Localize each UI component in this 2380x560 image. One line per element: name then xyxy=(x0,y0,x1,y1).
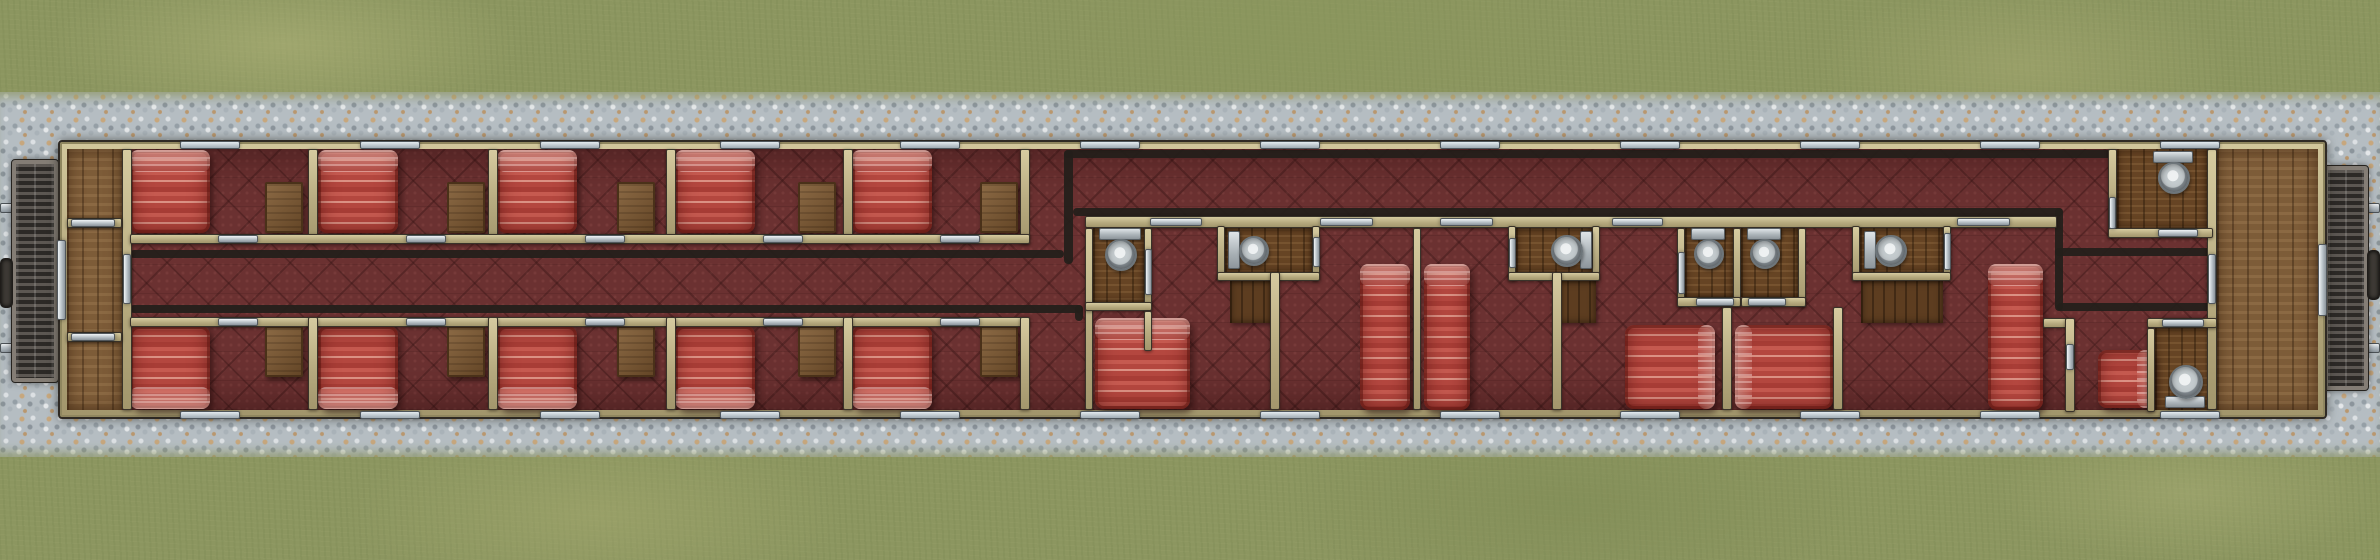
bed-pillow xyxy=(318,387,398,409)
window xyxy=(720,411,780,419)
sliding-door xyxy=(71,333,115,341)
window xyxy=(1620,411,1680,419)
corridor-line xyxy=(130,250,1064,258)
sleeper-car-battle-map xyxy=(0,0,2380,560)
wall xyxy=(666,149,676,244)
sliding-door xyxy=(2066,344,2074,370)
sliding-door xyxy=(218,318,258,326)
side-table xyxy=(447,182,485,233)
toilet xyxy=(1864,230,1906,268)
toilet xyxy=(1098,228,1140,270)
wood-step xyxy=(1556,281,1596,323)
wall xyxy=(2147,328,2155,412)
bed-pillow xyxy=(675,387,755,409)
sliding-door xyxy=(585,235,625,243)
corridor-line xyxy=(1064,150,1073,264)
toilet-bowl xyxy=(1694,239,1724,269)
bed xyxy=(497,326,577,409)
wood-step xyxy=(1230,281,1272,323)
wall xyxy=(1552,272,1562,410)
bed xyxy=(2098,350,2154,408)
bed xyxy=(130,326,210,409)
window xyxy=(540,411,600,419)
wall xyxy=(308,149,318,244)
sliding-door xyxy=(2208,254,2216,304)
gangway xyxy=(12,160,58,382)
window xyxy=(1080,411,1140,419)
bed-pillow xyxy=(852,387,932,409)
bed xyxy=(675,150,755,233)
window xyxy=(1080,141,1140,149)
window xyxy=(360,141,420,149)
bed-pillow xyxy=(1424,264,1470,286)
sliding-door xyxy=(1696,298,1734,306)
wall xyxy=(1733,228,1741,307)
sliding-door xyxy=(123,254,131,304)
side-table xyxy=(798,326,836,377)
sliding-door xyxy=(2109,197,2116,229)
toilet-bowl xyxy=(2169,365,2203,399)
sliding-door xyxy=(1320,218,1373,226)
gangway xyxy=(2324,166,2368,390)
sliding-door xyxy=(1150,218,1202,226)
toilet xyxy=(2164,362,2204,406)
bed-pillow xyxy=(675,150,755,172)
side-table xyxy=(265,326,303,377)
window xyxy=(2160,141,2220,149)
window xyxy=(1800,141,1860,149)
bed xyxy=(1625,325,1715,409)
corridor-line xyxy=(130,305,1083,313)
bed-pillow xyxy=(1360,264,1410,286)
sliding-door xyxy=(406,235,446,243)
wall xyxy=(1217,272,1320,281)
side-table xyxy=(617,326,655,377)
bed-pillow xyxy=(852,150,932,172)
bed-pillow xyxy=(1735,325,1752,409)
bed xyxy=(852,326,932,409)
window xyxy=(1980,411,2040,419)
side-table xyxy=(980,326,1018,377)
toilet xyxy=(1690,228,1724,268)
sliding-door xyxy=(1678,252,1685,294)
sliding-door xyxy=(940,235,980,243)
vestibule-floor xyxy=(67,149,122,410)
wall xyxy=(843,149,853,244)
window xyxy=(1440,141,1500,149)
wall xyxy=(1833,307,1843,410)
bed-pillow xyxy=(497,387,577,409)
sliding-door xyxy=(1748,298,1786,306)
window xyxy=(1800,411,1860,419)
corridor-line xyxy=(1075,305,1083,321)
window xyxy=(1260,411,1320,419)
wall xyxy=(1085,302,1152,311)
sliding-door xyxy=(406,318,446,326)
sliding-door xyxy=(57,240,66,320)
side-table xyxy=(980,182,1018,233)
window xyxy=(2160,411,2220,419)
bed-pillow xyxy=(130,387,210,409)
bed xyxy=(497,150,577,233)
wall xyxy=(666,317,676,410)
window xyxy=(540,141,600,149)
toilet-bowl xyxy=(2158,162,2190,194)
bed xyxy=(130,150,210,233)
toilet xyxy=(1548,230,1590,268)
wall xyxy=(1270,272,1280,410)
wall xyxy=(488,149,498,244)
sliding-door xyxy=(2162,319,2204,327)
toilet xyxy=(2152,151,2192,193)
side-table xyxy=(265,182,303,233)
bed xyxy=(318,150,398,233)
window xyxy=(1440,411,1500,419)
coupler xyxy=(0,258,13,308)
window xyxy=(1620,141,1680,149)
wall xyxy=(1798,228,1806,307)
bed xyxy=(1735,325,1833,409)
sliding-door xyxy=(1509,238,1516,268)
wall xyxy=(1085,216,2057,228)
sliding-door xyxy=(1440,218,1493,226)
window xyxy=(900,411,960,419)
corridor-line xyxy=(1064,150,2213,158)
wall xyxy=(1085,228,1093,410)
bed xyxy=(852,150,932,233)
window xyxy=(360,411,420,419)
window xyxy=(900,141,960,149)
wall xyxy=(488,317,498,410)
bed xyxy=(1424,264,1470,410)
sliding-door xyxy=(71,219,115,227)
window xyxy=(1260,141,1320,149)
bed xyxy=(675,326,755,409)
wood-step xyxy=(1861,281,1943,323)
wall xyxy=(1413,228,1421,410)
wall xyxy=(130,234,1030,244)
bed-pillow xyxy=(130,150,210,172)
toilet xyxy=(1228,230,1268,268)
toilet-bowl xyxy=(1239,236,1269,266)
wall xyxy=(1020,317,1030,410)
corridor-line xyxy=(2055,248,2213,256)
bed-pillow xyxy=(318,150,398,172)
bed-pillow xyxy=(1988,264,2043,286)
sliding-door xyxy=(218,235,258,243)
window xyxy=(720,141,780,149)
wall xyxy=(130,317,1030,327)
side-table xyxy=(447,326,485,377)
wall xyxy=(308,317,318,410)
vestibule-floor xyxy=(2217,149,2318,410)
side-table xyxy=(617,182,655,233)
bed xyxy=(1095,318,1190,409)
window xyxy=(180,141,240,149)
sliding-door xyxy=(1313,237,1320,267)
toilet xyxy=(1746,228,1780,268)
wall xyxy=(843,317,853,410)
window xyxy=(1980,141,2040,149)
sliding-door xyxy=(585,318,625,326)
corridor-line xyxy=(1073,208,2063,216)
toilet-bowl xyxy=(1875,235,1907,267)
wall xyxy=(1852,272,1951,281)
sliding-door xyxy=(763,235,803,243)
wall xyxy=(1144,311,1152,351)
wall xyxy=(1722,307,1732,410)
sliding-door xyxy=(2318,244,2327,316)
coupler xyxy=(2367,250,2380,300)
sliding-door xyxy=(763,318,803,326)
sliding-door xyxy=(1957,218,2010,226)
bed xyxy=(1360,264,1410,410)
window xyxy=(180,411,240,419)
wall xyxy=(1020,149,1030,244)
sliding-door xyxy=(940,318,980,326)
bed-pillow xyxy=(1698,325,1715,409)
side-table xyxy=(798,182,836,233)
bed-pillow xyxy=(1095,318,1190,340)
sliding-door xyxy=(1944,233,1951,270)
sliding-door xyxy=(2158,229,2198,237)
sliding-door xyxy=(1612,218,1663,226)
corridor-line xyxy=(2057,303,2213,311)
bed-pillow xyxy=(497,150,577,172)
bed xyxy=(318,326,398,409)
toilet-bowl xyxy=(1551,235,1583,267)
carpet-floor xyxy=(67,149,2318,410)
toilet-bowl xyxy=(1750,239,1780,269)
toilet-bowl xyxy=(1105,239,1137,271)
sliding-door xyxy=(1145,249,1152,295)
bed xyxy=(1988,264,2043,410)
